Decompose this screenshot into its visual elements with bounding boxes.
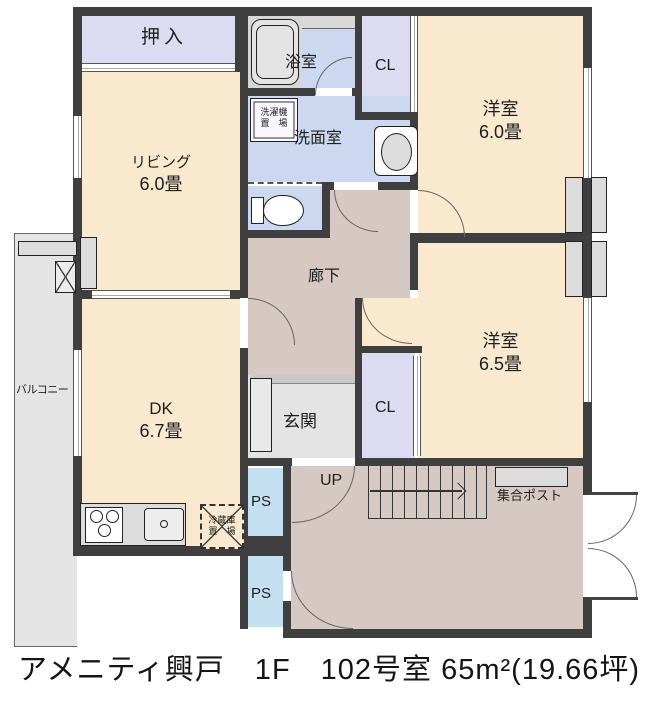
closet-top-label: CL (375, 57, 395, 75)
ac-indoor-unit (80, 237, 97, 289)
washbasin-bowl (381, 133, 412, 171)
ac-outdoor-unit (591, 241, 607, 297)
closet-bottom-label: CL (375, 399, 395, 417)
living-dk-sliding-door (92, 290, 230, 299)
room-name: 洋室 (418, 330, 583, 353)
room-bathroom-label: 浴室 (285, 54, 317, 72)
room-oshiire-label: 押入 (141, 27, 187, 49)
stairs-up-label: UP (320, 472, 342, 490)
stove-burner (98, 524, 111, 537)
wall (283, 629, 592, 638)
ac-outdoor-unit (18, 241, 77, 256)
door-opening (334, 182, 378, 190)
bath-shelf (302, 16, 355, 29)
room-size: 6.0畳 (418, 121, 583, 144)
door-opening (240, 298, 248, 348)
stairs (368, 466, 487, 519)
stove-burner (90, 510, 103, 523)
washer-space-label2: 置 場 (251, 118, 297, 129)
fridge-space-label1: 冷蔵庫 (202, 515, 242, 526)
sink-drain (160, 520, 168, 528)
door-opening (283, 571, 291, 601)
room-living-label: リビング 6.0畳 (82, 153, 240, 196)
window (583, 298, 592, 402)
wall (410, 243, 418, 290)
room-name: 洋室 (418, 98, 583, 121)
ps-top-label: PS (251, 493, 271, 510)
wall (583, 7, 592, 68)
entry-double-door-arc-bottom (588, 548, 637, 597)
wall (235, 16, 248, 72)
balcony-label: バルコニー (16, 384, 68, 397)
ac-outdoor-unit (591, 177, 607, 233)
mailbox-box (495, 467, 568, 487)
ac-indoor-unit (565, 241, 583, 297)
balcony-area (14, 233, 77, 647)
wall (240, 348, 248, 629)
entry-door-stub (590, 597, 638, 600)
room-size: 6.0畳 (82, 173, 240, 196)
wall (355, 458, 592, 466)
wall (73, 7, 82, 116)
wall (355, 16, 362, 120)
oshiire-sliding-door (82, 63, 235, 72)
room-name: DK (82, 398, 240, 420)
wall (240, 230, 330, 238)
ps-bottom-label: PS (251, 585, 271, 602)
front-door-opening (292, 458, 355, 466)
wall (583, 402, 592, 495)
fridge-space-label2: 置 場 (202, 526, 242, 537)
stove-burner (106, 510, 119, 523)
room-size: 6.5畳 (418, 353, 583, 376)
shoe-cabinet (250, 378, 272, 452)
wall (82, 290, 92, 299)
ac-outdoor-box (55, 261, 76, 293)
mailbox-label: 集合ポスト (497, 489, 562, 504)
wall (230, 290, 240, 299)
room-size: 6.7畳 (82, 420, 240, 443)
wall (73, 7, 592, 16)
fridge-space-box: 冷蔵庫 置 場 (200, 504, 244, 549)
washer-space-box: 洗濯機 置 場 (250, 98, 298, 142)
room-washroom-label: 洗面室 (294, 130, 342, 148)
entry-door-stub (590, 492, 638, 495)
wall (248, 536, 291, 556)
room-name: リビング (82, 153, 240, 173)
door-opening (410, 190, 418, 233)
hallway-label: 廊下 (308, 268, 340, 286)
toilet-bowl (263, 195, 304, 226)
entry-double-door-arc-top (588, 495, 637, 544)
window (583, 68, 592, 178)
room-western2-label: 洋室 6.5畳 (418, 330, 583, 377)
window (73, 116, 82, 178)
room-entrance-label: 玄関 (283, 412, 317, 432)
stairs-direction-line (370, 490, 462, 492)
wall (283, 601, 291, 629)
wall (355, 112, 418, 120)
washer-space-label1: 洗濯機 (251, 107, 297, 118)
room-dk-label: DK 6.7畳 (82, 398, 240, 443)
plan-caption: アメニティ興戸 1F 102号室 65m²(19.66坪) (18, 646, 640, 688)
wall (355, 298, 362, 463)
floor-plan: 洗濯機 置 場 冷蔵庫 置 場 押入 浴室 CL 洋室 6.0畳 リビング 6.… (0, 0, 670, 702)
ac-indoor-unit (565, 177, 583, 233)
wall (240, 458, 292, 466)
toilet-partition-dashed (248, 182, 322, 184)
balcony-door-window (73, 350, 82, 456)
wall (355, 346, 422, 353)
closet-top-sliding-door (410, 16, 418, 112)
room-western1-label: 洋室 6.0畳 (418, 98, 583, 145)
